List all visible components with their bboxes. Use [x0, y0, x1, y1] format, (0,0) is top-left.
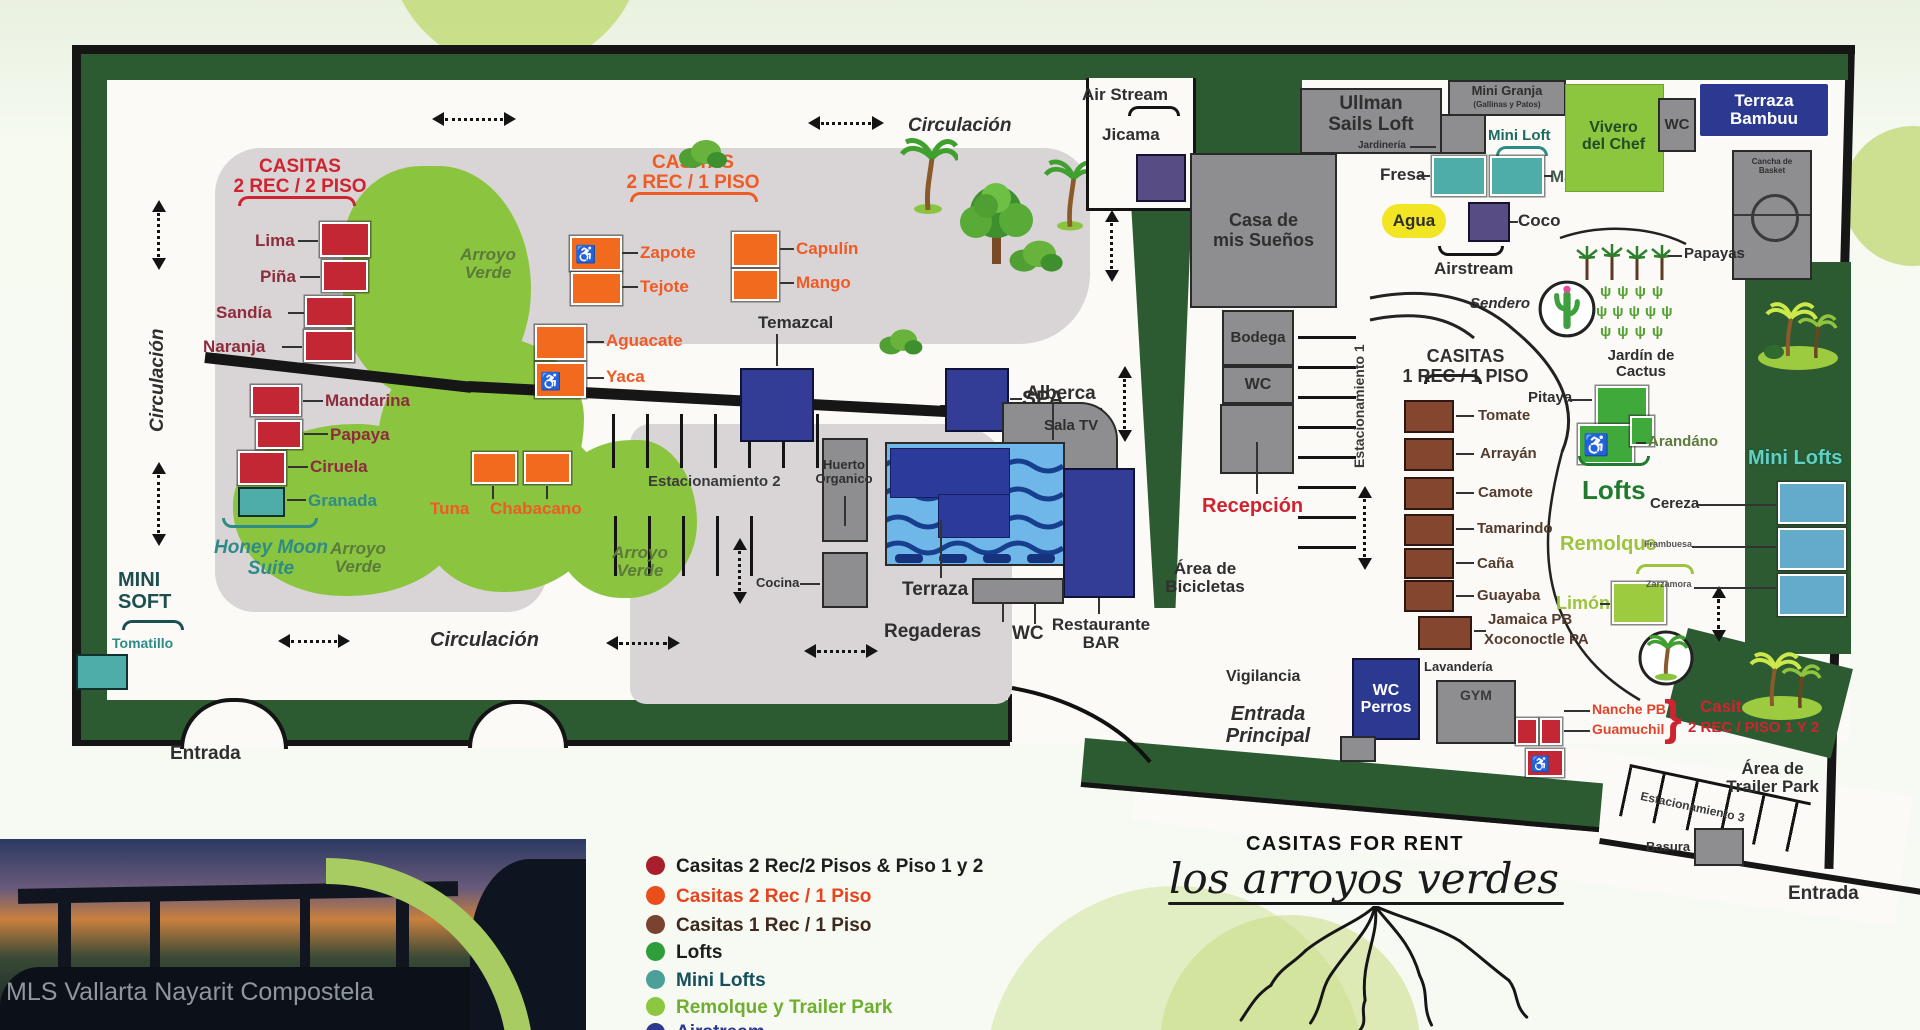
agua-badge: Agua [1382, 204, 1446, 238]
wc-building-ne: WC [1658, 98, 1696, 152]
mini-loft-brace [1496, 146, 1548, 156]
cactus-icon [1536, 278, 1598, 340]
casitas-1rec-brace [1424, 374, 1482, 384]
basura-label: Basura [1646, 840, 1690, 854]
casita-sandia [305, 296, 354, 327]
air-stream-brace [1128, 106, 1180, 116]
manzano-unit [1490, 156, 1544, 196]
palm-island-icon [1740, 644, 1824, 722]
vigilancia-label: Vigilancia [1226, 668, 1300, 685]
label-capulin: Capulín [796, 240, 858, 258]
remolque-brace [1636, 564, 1694, 574]
casita-yaca: ♿ [535, 362, 586, 398]
label-arrayan: Arrayán [1480, 446, 1537, 462]
wc-perros-annex [1340, 736, 1376, 762]
legend-swatch [646, 886, 665, 905]
casita-accesible: ♿ [1526, 749, 1564, 777]
circulation-arrow [808, 116, 884, 130]
wc-perros-building: WC Perros [1352, 658, 1420, 740]
regaderas-label: Regaderas [884, 622, 981, 643]
legend-label: Remolque y Trailer Park [676, 997, 893, 1019]
cactus-field-icon: ψψψψ [1600, 284, 1669, 300]
circulation-arrow [1118, 366, 1132, 442]
arroyo-verde-label: Arroyo Verde [448, 246, 528, 283]
circulacion-left: Circulación [148, 329, 169, 432]
label-zapote: Zapote [640, 244, 696, 262]
huerto-building [822, 438, 868, 542]
label-tomate: Tomate [1478, 408, 1530, 424]
zarzamora-label: Zarzamora [1646, 580, 1692, 590]
casita-tejote [571, 272, 622, 305]
area-bicicletas-label: Área de Bicicletas [1150, 560, 1260, 597]
temazcal-building [740, 368, 814, 442]
bodega-building: Bodega [1222, 310, 1294, 366]
casa-mis-suenos-building: Casa de mis Sueños [1190, 153, 1337, 308]
casita-nanche [1516, 718, 1538, 745]
mini-granja-building: Mini Granja (Gallinas y Patos) [1448, 80, 1566, 116]
parking2-label: Estacionamiento 2 [648, 474, 781, 490]
mini-soft-brace [122, 620, 184, 630]
tomatillo-label: Tomatillo [112, 636, 173, 651]
legend-swatch [646, 942, 665, 961]
remolque-label: Remolque [1560, 534, 1657, 556]
casita-chabacano [524, 452, 571, 484]
wc-label-pool: WC [1012, 624, 1044, 645]
casita-pina [322, 260, 368, 292]
area-trailer-park-label: Área de Trailer Park [1700, 760, 1845, 797]
guamuchil-label: Guamuchil [1592, 722, 1664, 737]
jicama-label: Jicama [1102, 126, 1160, 144]
miniloft-zarzamora [1778, 574, 1846, 616]
mini-lofts-label: Mini Lofts [1748, 448, 1842, 470]
label-aguacate: Aguacate [606, 332, 683, 350]
casitas-piso12-brace: } [1664, 689, 1682, 746]
air-stream-label: Air Stream [1082, 86, 1168, 104]
casitas-2rec-2piso-heading: CASITAS2 REC / 2 PISO [225, 136, 375, 198]
temazcal-label: Temazcal [758, 314, 833, 332]
lofts-label: Lofts [1582, 476, 1646, 504]
pool-deck-dark [890, 448, 1010, 498]
sendero-label: Sendero [1470, 296, 1530, 312]
bush-icon [676, 134, 728, 172]
arandano-label: Arandáno [1648, 434, 1718, 450]
circulation-arrow [1105, 210, 1119, 282]
miniloft-cereza [1778, 482, 1846, 524]
papayas-trees-icon [1572, 230, 1672, 282]
pool-deck-dark [938, 494, 1010, 538]
legend-label: Casitas 1 Rec / 1 Piso [676, 915, 871, 937]
lofts-brace [1578, 456, 1650, 466]
papayas-label: Papayas [1684, 246, 1745, 262]
legend-label: Casitas 2 Rec/2 Pisos & Piso 1 y 2 [676, 856, 983, 878]
lavanderia-label: Lavandería [1424, 660, 1493, 674]
label-cana: Caña [1477, 556, 1514, 572]
resort-map-page: Estacionamiento 2 Estacionamiento 1 Esta… [0, 0, 1920, 1030]
parking1-label: Estacionamiento 1 [1352, 344, 1367, 468]
restaurante-building [1063, 468, 1135, 598]
label-guayaba: Guayaba [1477, 588, 1540, 604]
tomatillo-unit [76, 654, 128, 690]
label-mango: Mango [796, 274, 851, 292]
casita-mango [732, 269, 779, 301]
label-naranja: Naranja [203, 338, 265, 356]
casita-naranja [304, 330, 354, 362]
legend-label: Casitas 2 Rec / 1 Piso [676, 886, 871, 908]
casita-zapote: ♿ [570, 236, 622, 271]
circulation-arrow [152, 462, 166, 546]
label-lima: Lima [255, 232, 295, 250]
bush-icon [1005, 234, 1065, 276]
label-sandia: Sandía [216, 304, 272, 322]
entrada-label-sw: Entrada [170, 744, 241, 765]
cocina-building [822, 552, 868, 608]
circulacion-bottom: Circulación [430, 630, 539, 652]
circulation-arrow [278, 634, 350, 648]
casita-granada [238, 487, 285, 517]
casita-papaya [256, 420, 302, 449]
circulation-arrow [152, 200, 166, 270]
fresa-unit [1432, 156, 1486, 196]
label-tamarindo: Tamarindo [1477, 521, 1553, 537]
cactus-field-icon: ψψψψ [1600, 324, 1669, 340]
casita-tuna [472, 452, 517, 484]
casita-arrayan [1404, 438, 1454, 471]
legend-swatch [646, 970, 665, 989]
label-xoconoctle: Xoconoctle PA [1484, 632, 1589, 648]
frambuesa-label: Frambuesa [1644, 540, 1692, 550]
jardineria-label: Jardinería [1358, 141, 1406, 152]
casita-cana [1404, 548, 1454, 579]
legend-swatch [646, 856, 665, 875]
label-jamaica: Jamaica PB [1488, 612, 1572, 628]
vivero-building: Vivero del Chef [1565, 84, 1664, 192]
logo-title: CASITAS FOR RENT [1240, 834, 1470, 856]
huerto-label: Huerto Organico [792, 458, 896, 486]
legend-label: Lofts [676, 942, 722, 964]
parking1-stalls [1298, 336, 1356, 564]
label-yaca: Yaca [606, 368, 645, 386]
arroyo-verde-label: Arroyo Verde [318, 540, 398, 577]
logo-roots-graphic [1210, 906, 1540, 1030]
basura-building [1694, 828, 1744, 866]
casita-capulin [732, 232, 779, 267]
casita-guayaba [1404, 580, 1454, 612]
wc-building-reception: WC [1222, 366, 1294, 404]
logo-name: los arroyos verdes [1162, 854, 1566, 903]
gym-building: GYM [1436, 680, 1516, 744]
label-mandarina: Mandarina [325, 392, 410, 410]
mini-soft-label: MINI SOFT [118, 570, 171, 613]
casita-ciruela [238, 451, 286, 485]
circulation-arrow [733, 538, 747, 604]
entrada-label-se: Entrada [1788, 884, 1859, 905]
casita-lima [320, 222, 370, 257]
legend-swatch [646, 915, 665, 934]
coco-label: Coco [1518, 212, 1561, 230]
label-camote: Camote [1478, 485, 1533, 501]
bush-icon [876, 324, 924, 358]
casitas-2rec-2piso-brace [238, 196, 356, 206]
circulation-arrow [1712, 586, 1726, 642]
casita-aguacate [535, 325, 586, 360]
alberca-label: Alberca [1026, 384, 1096, 405]
label-tejote: Tejote [640, 278, 689, 296]
label-papaya: Papaya [330, 426, 390, 444]
casitas-2rec-1piso-brace [630, 192, 758, 202]
cactus-field-icon: ψψψψψ [1596, 304, 1678, 320]
nanche-label: Nanche PB [1592, 702, 1666, 717]
casita-tomate [1404, 400, 1454, 433]
legend-label: Mini Lofts [676, 970, 766, 992]
regaderas-building [972, 578, 1064, 604]
palm-circle-icon [1636, 628, 1696, 688]
logo-underline [1168, 902, 1564, 905]
airstream-brace [1438, 246, 1504, 256]
restaurante-label: Restaurante BAR [1046, 616, 1156, 653]
label-chabacano: Chabacano [490, 500, 582, 518]
honeymoon-brace [222, 518, 318, 528]
jicama-unit [1136, 154, 1186, 202]
pitaya-label: Pitaya [1528, 390, 1572, 406]
watermark: MLS Vallarta Nayarit Compostela [6, 978, 374, 1007]
terraza-bambuu-sign: Terraza Bambuu [1698, 82, 1830, 138]
arroyo-verde-label: Arroyo Verde [600, 544, 680, 581]
circulation-arrow [606, 636, 680, 650]
recepcion-label: Recepción [1202, 496, 1303, 518]
circulation-arrow [804, 644, 878, 658]
casita-mandarina [251, 385, 301, 416]
airstream-label: Airstream [1434, 260, 1513, 278]
casita-tamarindo [1404, 514, 1454, 546]
entrada-principal-label: Entrada Principal [1208, 704, 1328, 747]
legend-swatch [646, 997, 665, 1016]
legend-label: Airstream [676, 1022, 765, 1030]
casita-jamaica-xoconoctle [1418, 616, 1472, 650]
circulation-arrow [432, 112, 516, 126]
cereza-label: Cereza [1650, 496, 1699, 512]
circulacion-top: Circulación [908, 116, 1011, 137]
label-granada: Granada [308, 492, 377, 510]
casita-guamuchil [1540, 718, 1562, 745]
spa-building [945, 368, 1009, 432]
circulation-arrow [1358, 486, 1372, 570]
miniloft-frambuesa [1778, 528, 1846, 570]
casitas-piso12-subtitle: 2 REC / PISO 1 Y 2 [1688, 720, 1819, 736]
jardineria-building [1440, 114, 1486, 154]
label-pina: Piña [260, 268, 296, 286]
coco-unit [1468, 202, 1510, 242]
jardin-cactus-label: Jardín de Cactus [1586, 348, 1696, 380]
cocina-label: Cocina [756, 576, 799, 590]
terraza-label: Terraza [902, 580, 968, 601]
casita-camote [1404, 477, 1454, 510]
mini-loft-label: Mini Loft [1488, 128, 1550, 144]
palm-island-icon [1756, 294, 1840, 372]
label-ciruela: Ciruela [310, 458, 368, 476]
label-tuna: Tuna [430, 500, 469, 518]
